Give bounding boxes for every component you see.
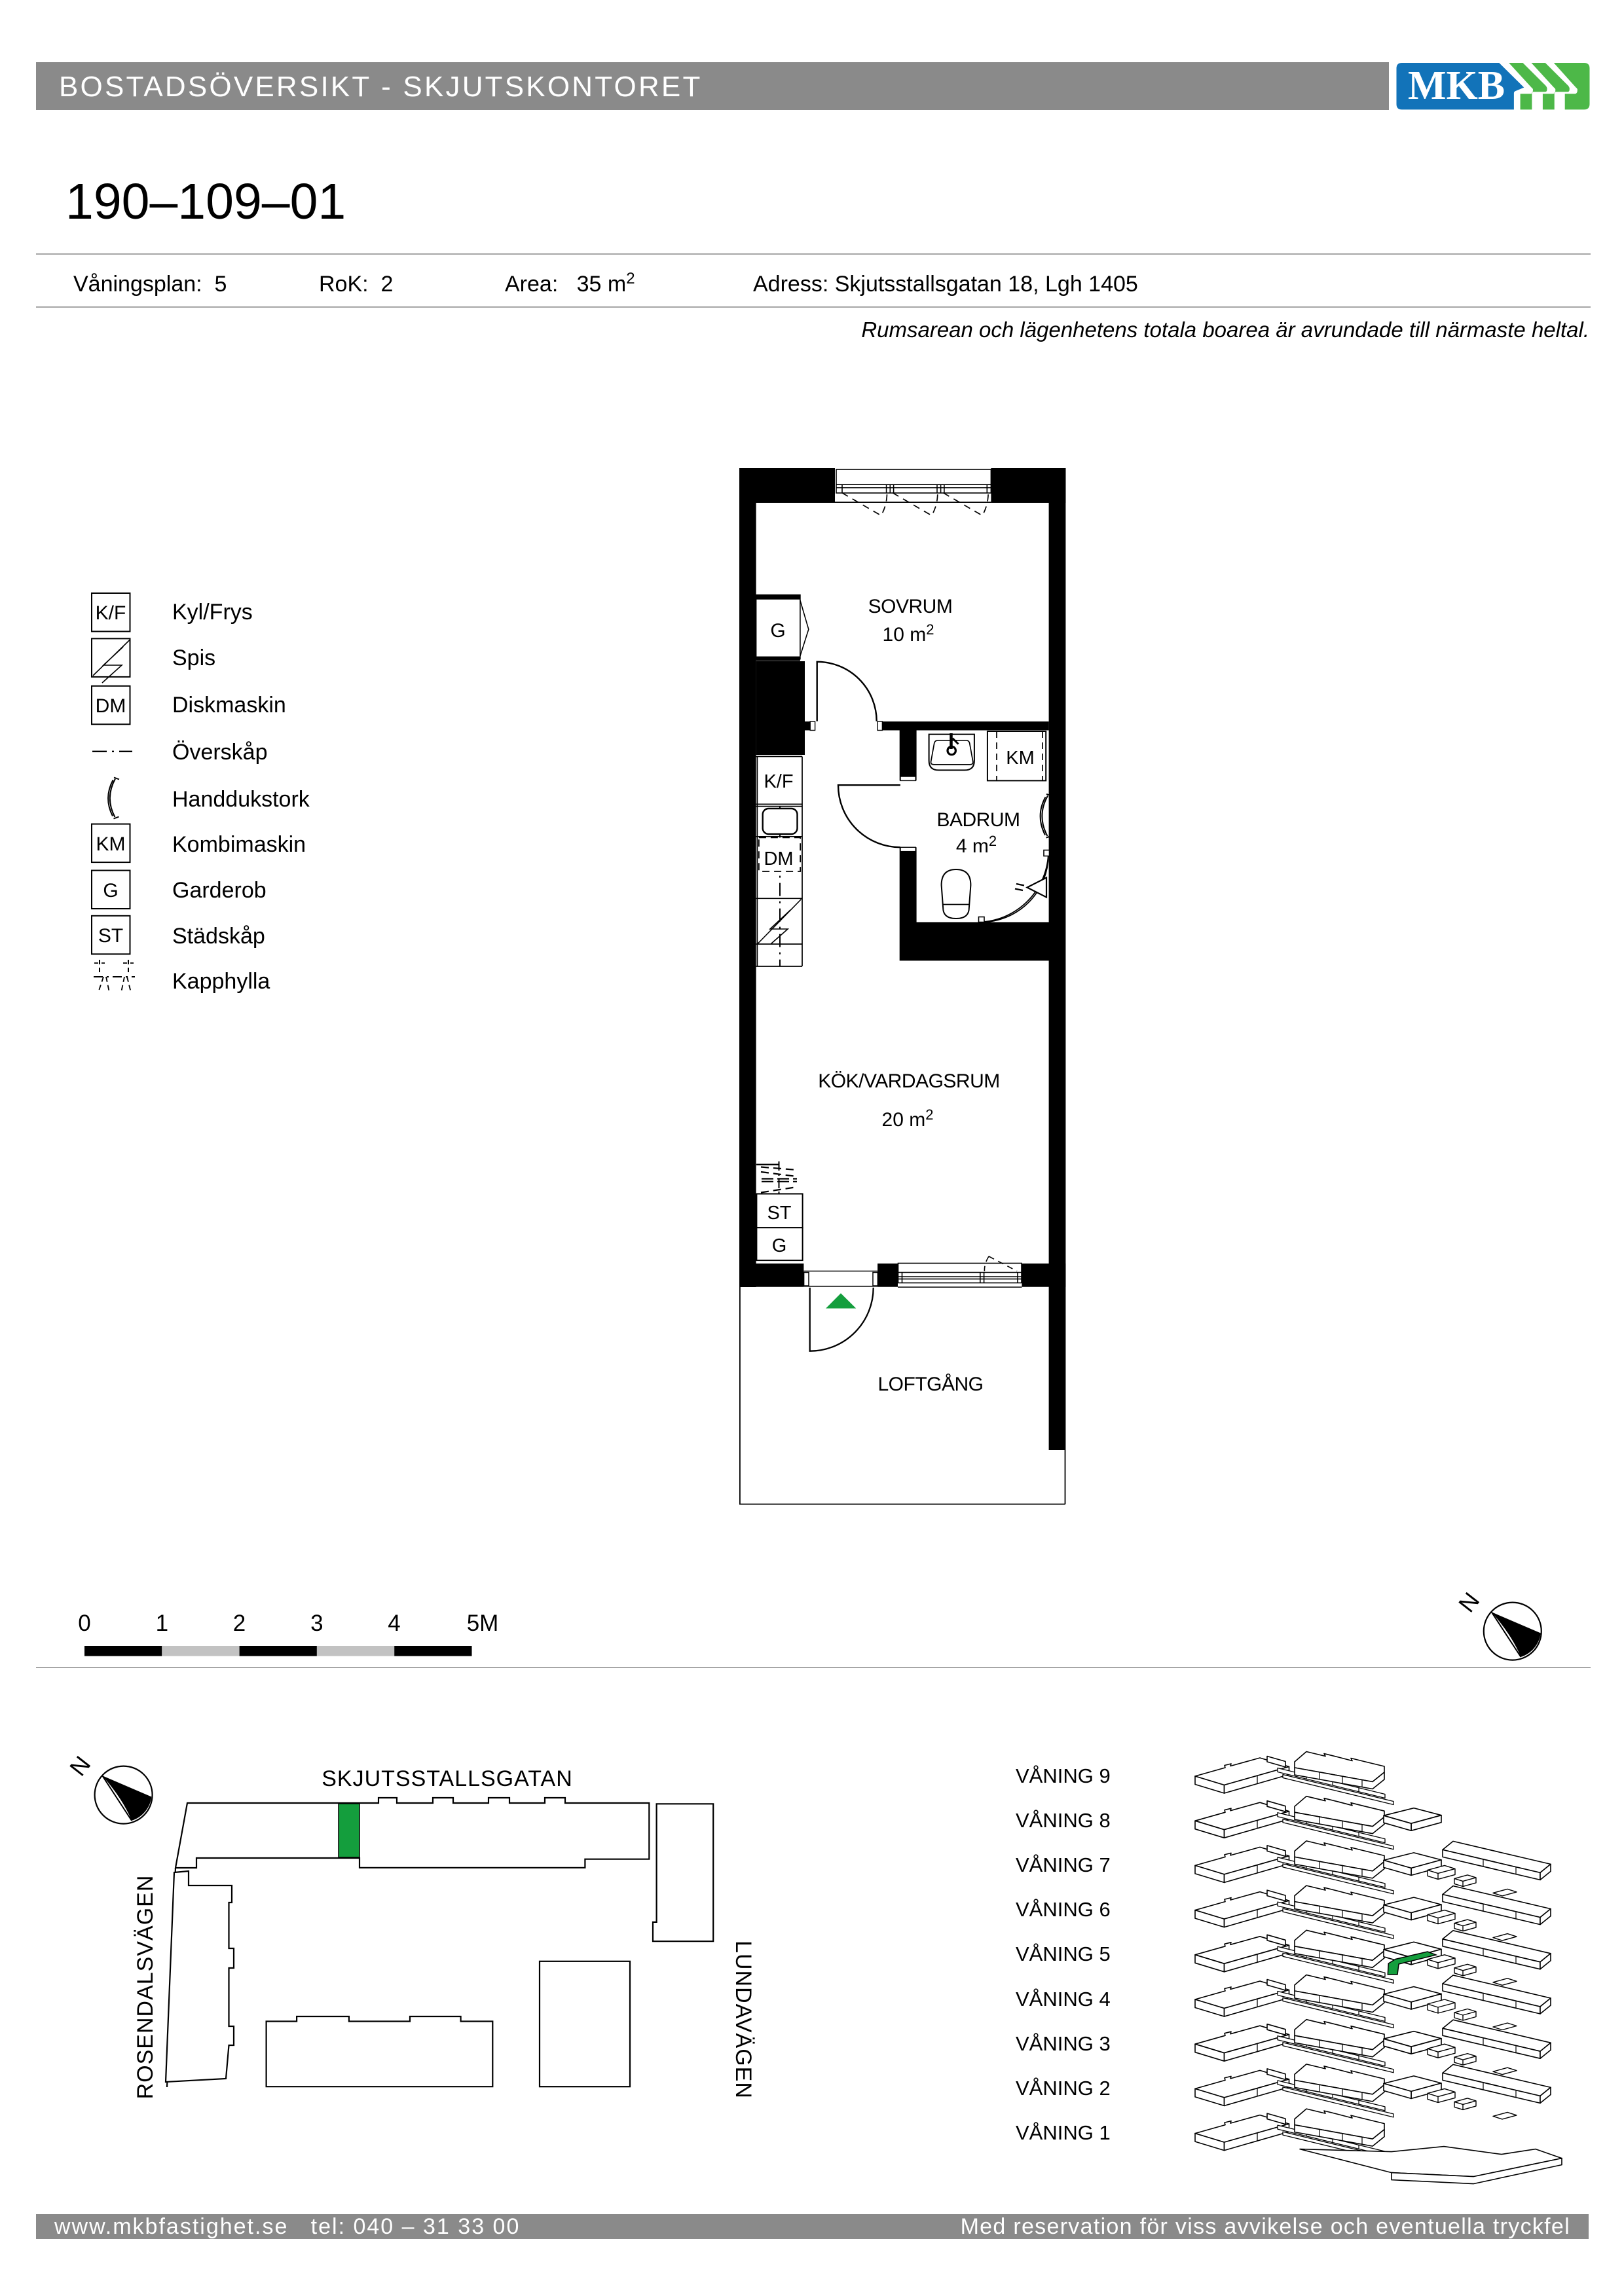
- svg-text:ST: ST: [767, 1203, 791, 1224]
- svg-text:5M: 5M: [467, 1611, 499, 1636]
- svg-text:Rumsarean och lägenhetens tota: Rumsarean och lägenhetens totala boarea …: [861, 318, 1589, 342]
- svg-text:DM: DM: [764, 848, 793, 869]
- svg-text:BADRUM: BADRUM: [936, 809, 1020, 831]
- svg-text:1: 1: [156, 1611, 168, 1636]
- svg-text:VÅNING 4: VÅNING 4: [1016, 1988, 1111, 2011]
- svg-text:2: 2: [233, 1611, 246, 1636]
- svg-text:K/F: K/F: [96, 602, 126, 624]
- svg-text:K/F: K/F: [764, 771, 793, 792]
- svg-text:Spis: Spis: [172, 646, 215, 670]
- svg-text:Kombimaskin: Kombimaskin: [172, 832, 306, 857]
- svg-text:Garderob: Garderob: [172, 878, 267, 903]
- svg-text:KÖK/VARDAGSRUM: KÖK/VARDAGSRUM: [818, 1070, 1000, 1092]
- svg-text:RoK: 2: RoK: 2: [319, 272, 393, 297]
- svg-text:Adress: Skjutsstallsgatan 18,: Adress: Skjutsstallsgatan 18, Lgh 1405: [753, 272, 1138, 297]
- svg-text:Area: 35 m2: Area: 35 m2: [505, 270, 635, 297]
- svg-text:Våningsplan: 5: Våningsplan: 5: [73, 272, 227, 297]
- svg-text:VÅNING 5: VÅNING 5: [1016, 1942, 1111, 1965]
- svg-text:VÅNING 3: VÅNING 3: [1016, 2032, 1111, 2055]
- svg-text:Diskmaskin: Diskmaskin: [172, 693, 286, 718]
- svg-text:VÅNING 1: VÅNING 1: [1016, 2121, 1111, 2144]
- svg-text:ROSENDALSVÄGEN: ROSENDALSVÄGEN: [133, 1875, 158, 2100]
- svg-text:Med reservation för viss avvik: Med reservation för viss avvikelse och e…: [961, 2214, 1570, 2239]
- svg-text:VÅNING 9: VÅNING 9: [1016, 1764, 1111, 1787]
- svg-text:LUNDAVÄGEN: LUNDAVÄGEN: [731, 1941, 756, 2099]
- svg-text:4: 4: [388, 1611, 400, 1636]
- svg-text:Städskåp: Städskåp: [172, 924, 265, 949]
- svg-text:3: 3: [310, 1611, 323, 1636]
- svg-text:MKB: MKB: [1408, 64, 1505, 108]
- svg-text:G: G: [770, 620, 785, 642]
- svg-text:BOSTADSÖVERSIKT - SKJUTSKONTOR: BOSTADSÖVERSIKT - SKJUTSKONTORET: [59, 71, 703, 103]
- svg-text:Kyl/Frys: Kyl/Frys: [172, 600, 253, 625]
- svg-text:KM: KM: [1006, 748, 1035, 769]
- svg-text:Kapphylla: Kapphylla: [172, 969, 270, 994]
- svg-text:G: G: [772, 1235, 787, 1256]
- svg-text:SOVRUM: SOVRUM: [868, 596, 953, 617]
- svg-text:SKJUTSSTALLSGATAN: SKJUTSSTALLSGATAN: [322, 1766, 573, 1791]
- svg-text:DM: DM: [96, 695, 126, 717]
- svg-text:VÅNING 7: VÅNING 7: [1016, 1853, 1111, 1876]
- svg-text:0: 0: [78, 1611, 90, 1636]
- svg-text:G: G: [103, 880, 118, 902]
- svg-text:Överskåp: Överskåp: [172, 740, 268, 765]
- svg-text:Handdukstork: Handdukstork: [172, 787, 310, 812]
- svg-text:VÅNING 6: VÅNING 6: [1016, 1898, 1111, 1921]
- svg-text:VÅNING 8: VÅNING 8: [1016, 1809, 1111, 1832]
- svg-text:www.mkbfastighet.se tel: 040: www.mkbfastighet.se tel: 040 – 31 33 00: [54, 2214, 520, 2239]
- svg-text:VÅNING 2: VÅNING 2: [1016, 2077, 1111, 2100]
- svg-text:LOFTGÅNG: LOFTGÅNG: [877, 1374, 983, 1395]
- svg-text:KM: KM: [96, 833, 126, 855]
- svg-text:ST: ST: [98, 925, 123, 947]
- svg-text:190–109–01: 190–109–01: [65, 173, 346, 230]
